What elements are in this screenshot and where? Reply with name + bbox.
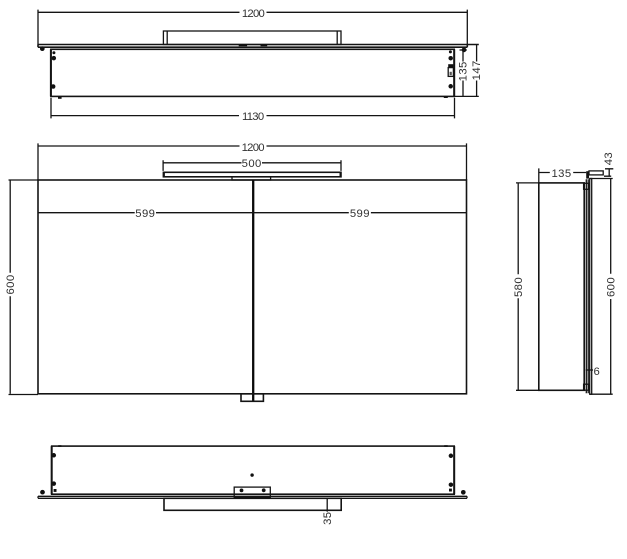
svg-text:599: 599 [350,208,370,220]
svg-text:1200: 1200 [242,142,265,154]
svg-text:600: 600 [5,274,17,294]
svg-text:580: 580 [513,277,525,297]
svg-text:147: 147 [471,60,483,80]
svg-text:1200: 1200 [242,8,265,20]
svg-text:135: 135 [458,61,470,81]
svg-text:6: 6 [593,366,600,378]
svg-text:500: 500 [242,158,262,170]
svg-text:135: 135 [551,168,571,180]
svg-text:600: 600 [606,277,618,297]
svg-text:43: 43 [603,152,615,165]
svg-text:599: 599 [135,208,155,220]
svg-text:1130: 1130 [242,111,264,123]
svg-text:35: 35 [322,512,334,525]
